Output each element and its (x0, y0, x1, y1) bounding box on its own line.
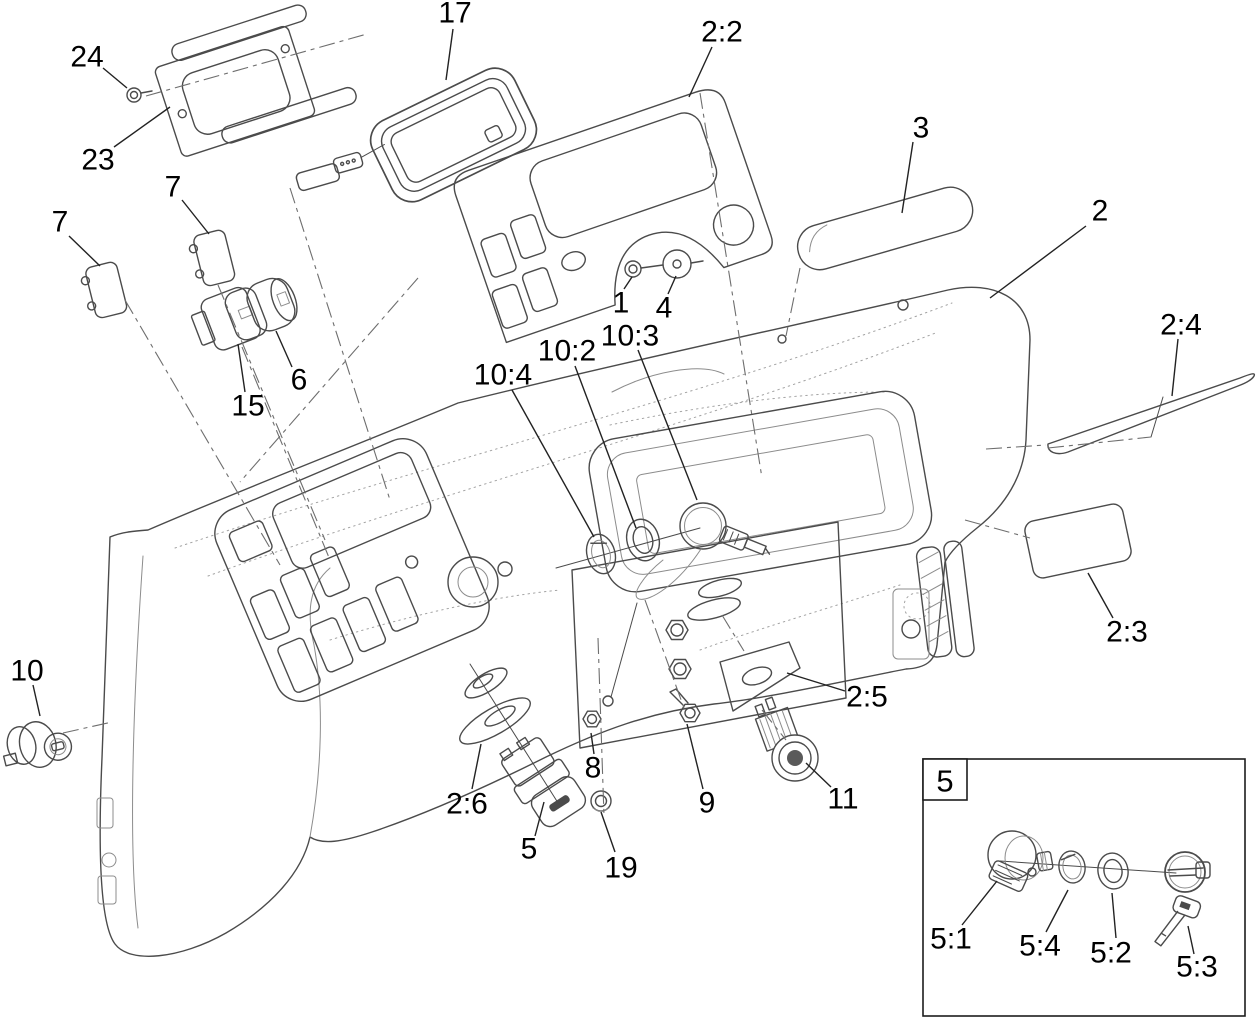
leader-line-10-4 (512, 390, 594, 537)
leader-line-23 (114, 107, 170, 147)
callout-8: 8 (585, 752, 602, 785)
decal-2-5 (720, 642, 800, 711)
decal-2-3 (1023, 502, 1133, 580)
side-bumper (915, 540, 975, 661)
leader-line-24 (103, 68, 127, 88)
washer-4 (663, 250, 691, 278)
callout-5-2: 5:2 (1090, 937, 1132, 970)
trim-strip-2-4 (1048, 374, 1254, 454)
callout-24: 24 (70, 41, 103, 74)
callout-7-left: 7 (52, 206, 69, 239)
leader-line-2-3 (1088, 573, 1113, 618)
blank-plug-left (79, 261, 128, 321)
bolt-9 (670, 689, 700, 722)
callout-5: 5 (521, 833, 538, 866)
display-connector (294, 144, 390, 191)
glove-pocket (584, 387, 936, 597)
assembly-axis-lines (63, 34, 1151, 816)
callout-10-3: 10:3 (601, 320, 659, 353)
callout-17: 17 (438, 0, 471, 30)
callout-2-2: 2:2 (701, 16, 743, 49)
leader-line-10-2 (575, 366, 636, 528)
leader-line-2-5 (787, 673, 845, 691)
display-bracket (127, 0, 358, 159)
blank-plug-upper (187, 229, 236, 289)
callout-3: 3 (913, 112, 930, 145)
leader-line-10 (33, 685, 40, 716)
display-module (294, 61, 544, 209)
callout-10-4: 10:4 (474, 359, 532, 392)
console-body (97, 287, 1030, 956)
callout-1: 1 (613, 287, 630, 320)
leader-line-7-left (69, 236, 100, 266)
callout-6: 6 (291, 364, 308, 397)
callout-2: 2 (1092, 195, 1109, 228)
leader-line-17 (446, 29, 453, 80)
callout-2-6: 2:6 (446, 788, 488, 821)
leader-line-2 (990, 226, 1086, 298)
nut-19 (591, 791, 611, 811)
leader-line-3 (902, 142, 913, 213)
callout-2-5: 2:5 (846, 681, 888, 714)
leader-line-9 (687, 724, 703, 789)
exploded-view-canvas: 5 (0, 0, 1258, 1021)
callout-10-2: 10:2 (538, 335, 596, 368)
leader-line-6 (276, 331, 292, 367)
key-10-3 (636, 503, 773, 599)
decal-2-6 (454, 663, 560, 806)
callout-2-4: 2:4 (1160, 309, 1202, 342)
inset-box-label: 5 (936, 764, 953, 799)
callout-10: 10 (10, 655, 43, 688)
callout-23: 23 (81, 144, 114, 177)
switch-15 (187, 282, 270, 357)
knob-6 (242, 272, 303, 335)
callout-5-1: 5:1 (930, 923, 972, 956)
parts-diagram-page: 5 (0, 0, 1258, 1021)
leader-line-5 (535, 802, 544, 836)
nut-1 (625, 261, 641, 277)
leader-line-7-upper (182, 200, 209, 234)
bolt-8 (583, 711, 601, 727)
callout-5-4: 5:4 (1019, 930, 1061, 963)
callout-19: 19 (604, 852, 637, 885)
handle (792, 182, 977, 275)
leader-line-2-6 (472, 744, 481, 789)
callout-5-3: 5:3 (1176, 951, 1218, 984)
mounting-plate (572, 522, 846, 748)
screw-24 (127, 88, 141, 102)
callout-15: 15 (231, 390, 264, 423)
callout-7-upper: 7 (165, 171, 182, 204)
key-switch-10 (0, 714, 75, 775)
switch-face-plate (207, 431, 497, 710)
leader-line-19 (601, 812, 615, 852)
callout-2-3: 2:3 (1106, 616, 1148, 649)
callout-11: 11 (827, 783, 858, 816)
callout-9: 9 (699, 787, 716, 820)
leader-line-2-4 (1172, 339, 1178, 396)
